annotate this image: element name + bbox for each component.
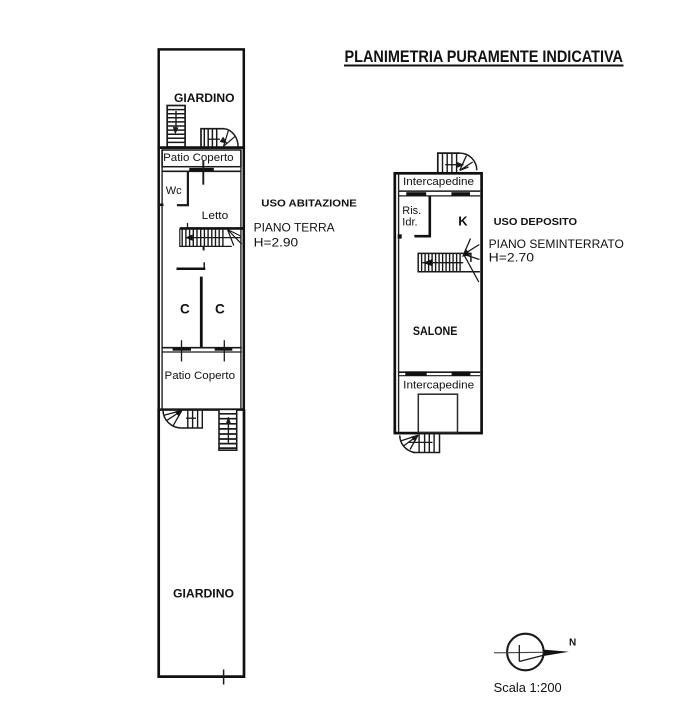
svg-text:Intercapedine: Intercapedine	[403, 176, 474, 188]
svg-text:PLANIMETRIA PURAMENTE INDICATI: PLANIMETRIA PURAMENTE INDICATIVA	[345, 47, 624, 66]
svg-text:C: C	[215, 301, 225, 316]
svg-text:C: C	[180, 301, 190, 316]
svg-text:Letto: Letto	[202, 210, 229, 222]
svg-text:PIANO TERRA: PIANO TERRA	[254, 223, 335, 235]
svg-text:Patio Coperto: Patio Coperto	[163, 152, 234, 164]
svg-text:GIARDINO: GIARDINO	[173, 587, 234, 601]
svg-text:SALONE: SALONE	[413, 324, 458, 338]
svg-text:Patio Coperto: Patio Coperto	[165, 370, 236, 382]
svg-text:GIARDINO: GIARDINO	[174, 91, 235, 105]
svg-text:Scala 1:200: Scala 1:200	[494, 681, 562, 695]
svg-text:PIANO SEMINTERRATO: PIANO SEMINTERRATO	[489, 239, 624, 251]
svg-text:Wc: Wc	[166, 185, 182, 197]
svg-text:H=2.90: H=2.90	[254, 237, 299, 249]
svg-text:K: K	[458, 214, 468, 229]
svg-text:Idr.: Idr.	[402, 217, 417, 229]
svg-text:USO DEPOSITO: USO DEPOSITO	[494, 217, 578, 228]
svg-text:Intercapedine: Intercapedine	[403, 379, 474, 391]
svg-text:USO ABITAZIONE: USO ABITAZIONE	[261, 199, 357, 210]
svg-text:H=2.70: H=2.70	[489, 252, 534, 264]
svg-text:Ris.: Ris.	[402, 205, 421, 217]
svg-text:N: N	[569, 638, 576, 649]
